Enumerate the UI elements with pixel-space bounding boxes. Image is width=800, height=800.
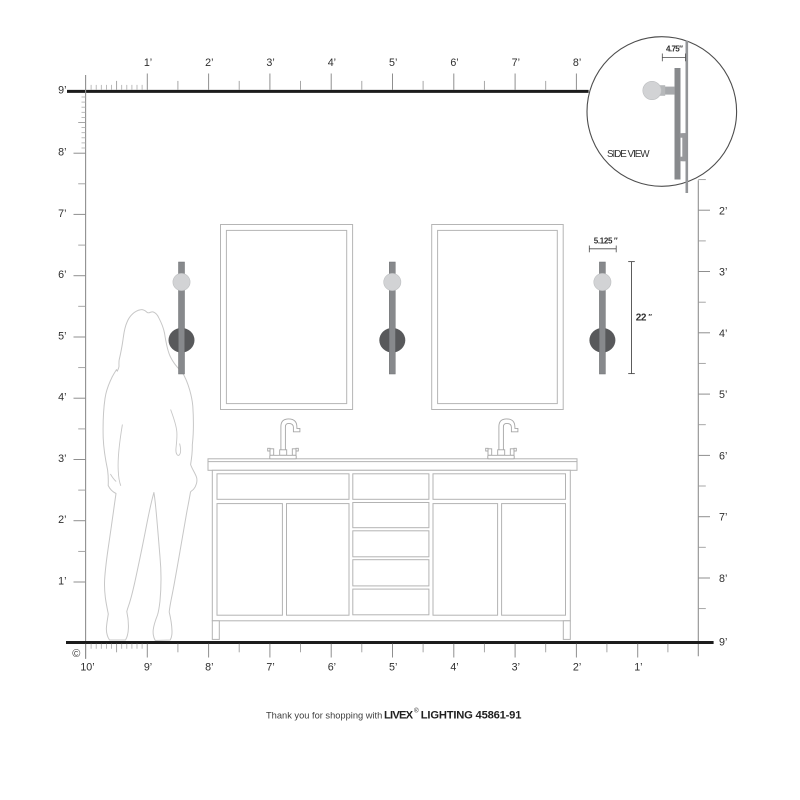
svg-text:LIVEX: LIVEX <box>384 709 414 721</box>
svg-text:3’: 3’ <box>266 57 274 69</box>
svg-text:8’: 8’ <box>573 57 581 69</box>
svg-text:4’: 4’ <box>328 57 336 69</box>
svg-text:10’: 10’ <box>80 662 94 674</box>
svg-text:2’: 2’ <box>719 205 727 217</box>
svg-text:5’: 5’ <box>719 389 727 401</box>
svg-text:9’: 9’ <box>58 85 66 97</box>
svg-text:3’: 3’ <box>58 453 66 465</box>
svg-text:SIDE VIEW: SIDE VIEW <box>607 149 650 160</box>
svg-text:4.75″: 4.75″ <box>666 45 683 54</box>
svg-text:6’: 6’ <box>719 451 727 463</box>
svg-text:4’: 4’ <box>450 662 458 674</box>
svg-text:©: © <box>72 648 80 660</box>
svg-text:1’: 1’ <box>58 576 66 588</box>
svg-text:®: ® <box>414 707 419 715</box>
svg-text:8’: 8’ <box>205 662 213 674</box>
svg-text:Thank you for shopping with: Thank you for shopping with <box>266 710 382 720</box>
svg-text:8’: 8’ <box>719 573 727 585</box>
svg-text:5.125 ″: 5.125 ″ <box>594 236 618 245</box>
svg-text:2’: 2’ <box>58 514 66 526</box>
svg-text:2’: 2’ <box>205 57 213 69</box>
svg-text:9’: 9’ <box>719 636 727 648</box>
svg-text:7’: 7’ <box>512 57 520 69</box>
svg-text:LIGHTING 45861-91: LIGHTING 45861-91 <box>421 709 521 721</box>
svg-text:3’: 3’ <box>512 662 520 674</box>
svg-text:7’: 7’ <box>266 662 274 674</box>
svg-text:7’: 7’ <box>58 208 66 220</box>
svg-text:5’: 5’ <box>389 57 397 69</box>
svg-text:8’: 8’ <box>58 147 66 159</box>
svg-text:9’: 9’ <box>144 662 152 674</box>
svg-text:4’: 4’ <box>719 328 727 340</box>
svg-text:2’: 2’ <box>573 662 581 674</box>
svg-text:6’: 6’ <box>58 269 66 281</box>
svg-text:5’: 5’ <box>58 331 66 343</box>
svg-text:6’: 6’ <box>328 662 336 674</box>
svg-text:5’: 5’ <box>389 662 397 674</box>
svg-text:7’: 7’ <box>719 512 727 524</box>
svg-text:3’: 3’ <box>719 267 727 279</box>
svg-text:6’: 6’ <box>450 57 458 69</box>
svg-text:1’: 1’ <box>634 662 642 674</box>
svg-text:1’: 1’ <box>144 57 152 69</box>
svg-text:4’: 4’ <box>58 392 66 404</box>
